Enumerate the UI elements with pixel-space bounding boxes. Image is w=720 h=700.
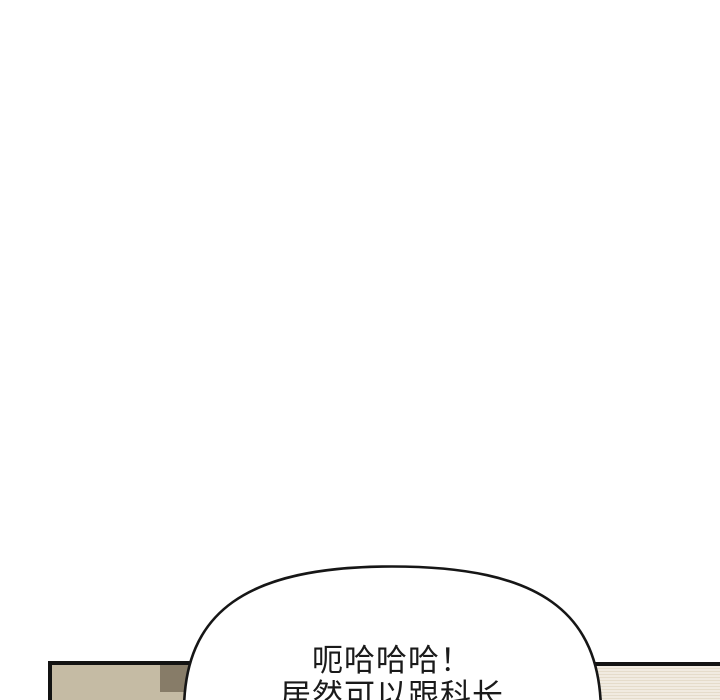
speech-text-line-1: 呃哈哈哈！	[184, 643, 600, 678]
speech-bubble-text: 呃哈哈哈！ 居然可以跟科长	[184, 643, 600, 700]
speech-text-line-2: 居然可以跟科长	[184, 678, 600, 700]
speech-bubble-layer	[0, 0, 720, 700]
comic-page: 呃哈哈哈！ 居然可以跟科长	[0, 0, 720, 700]
